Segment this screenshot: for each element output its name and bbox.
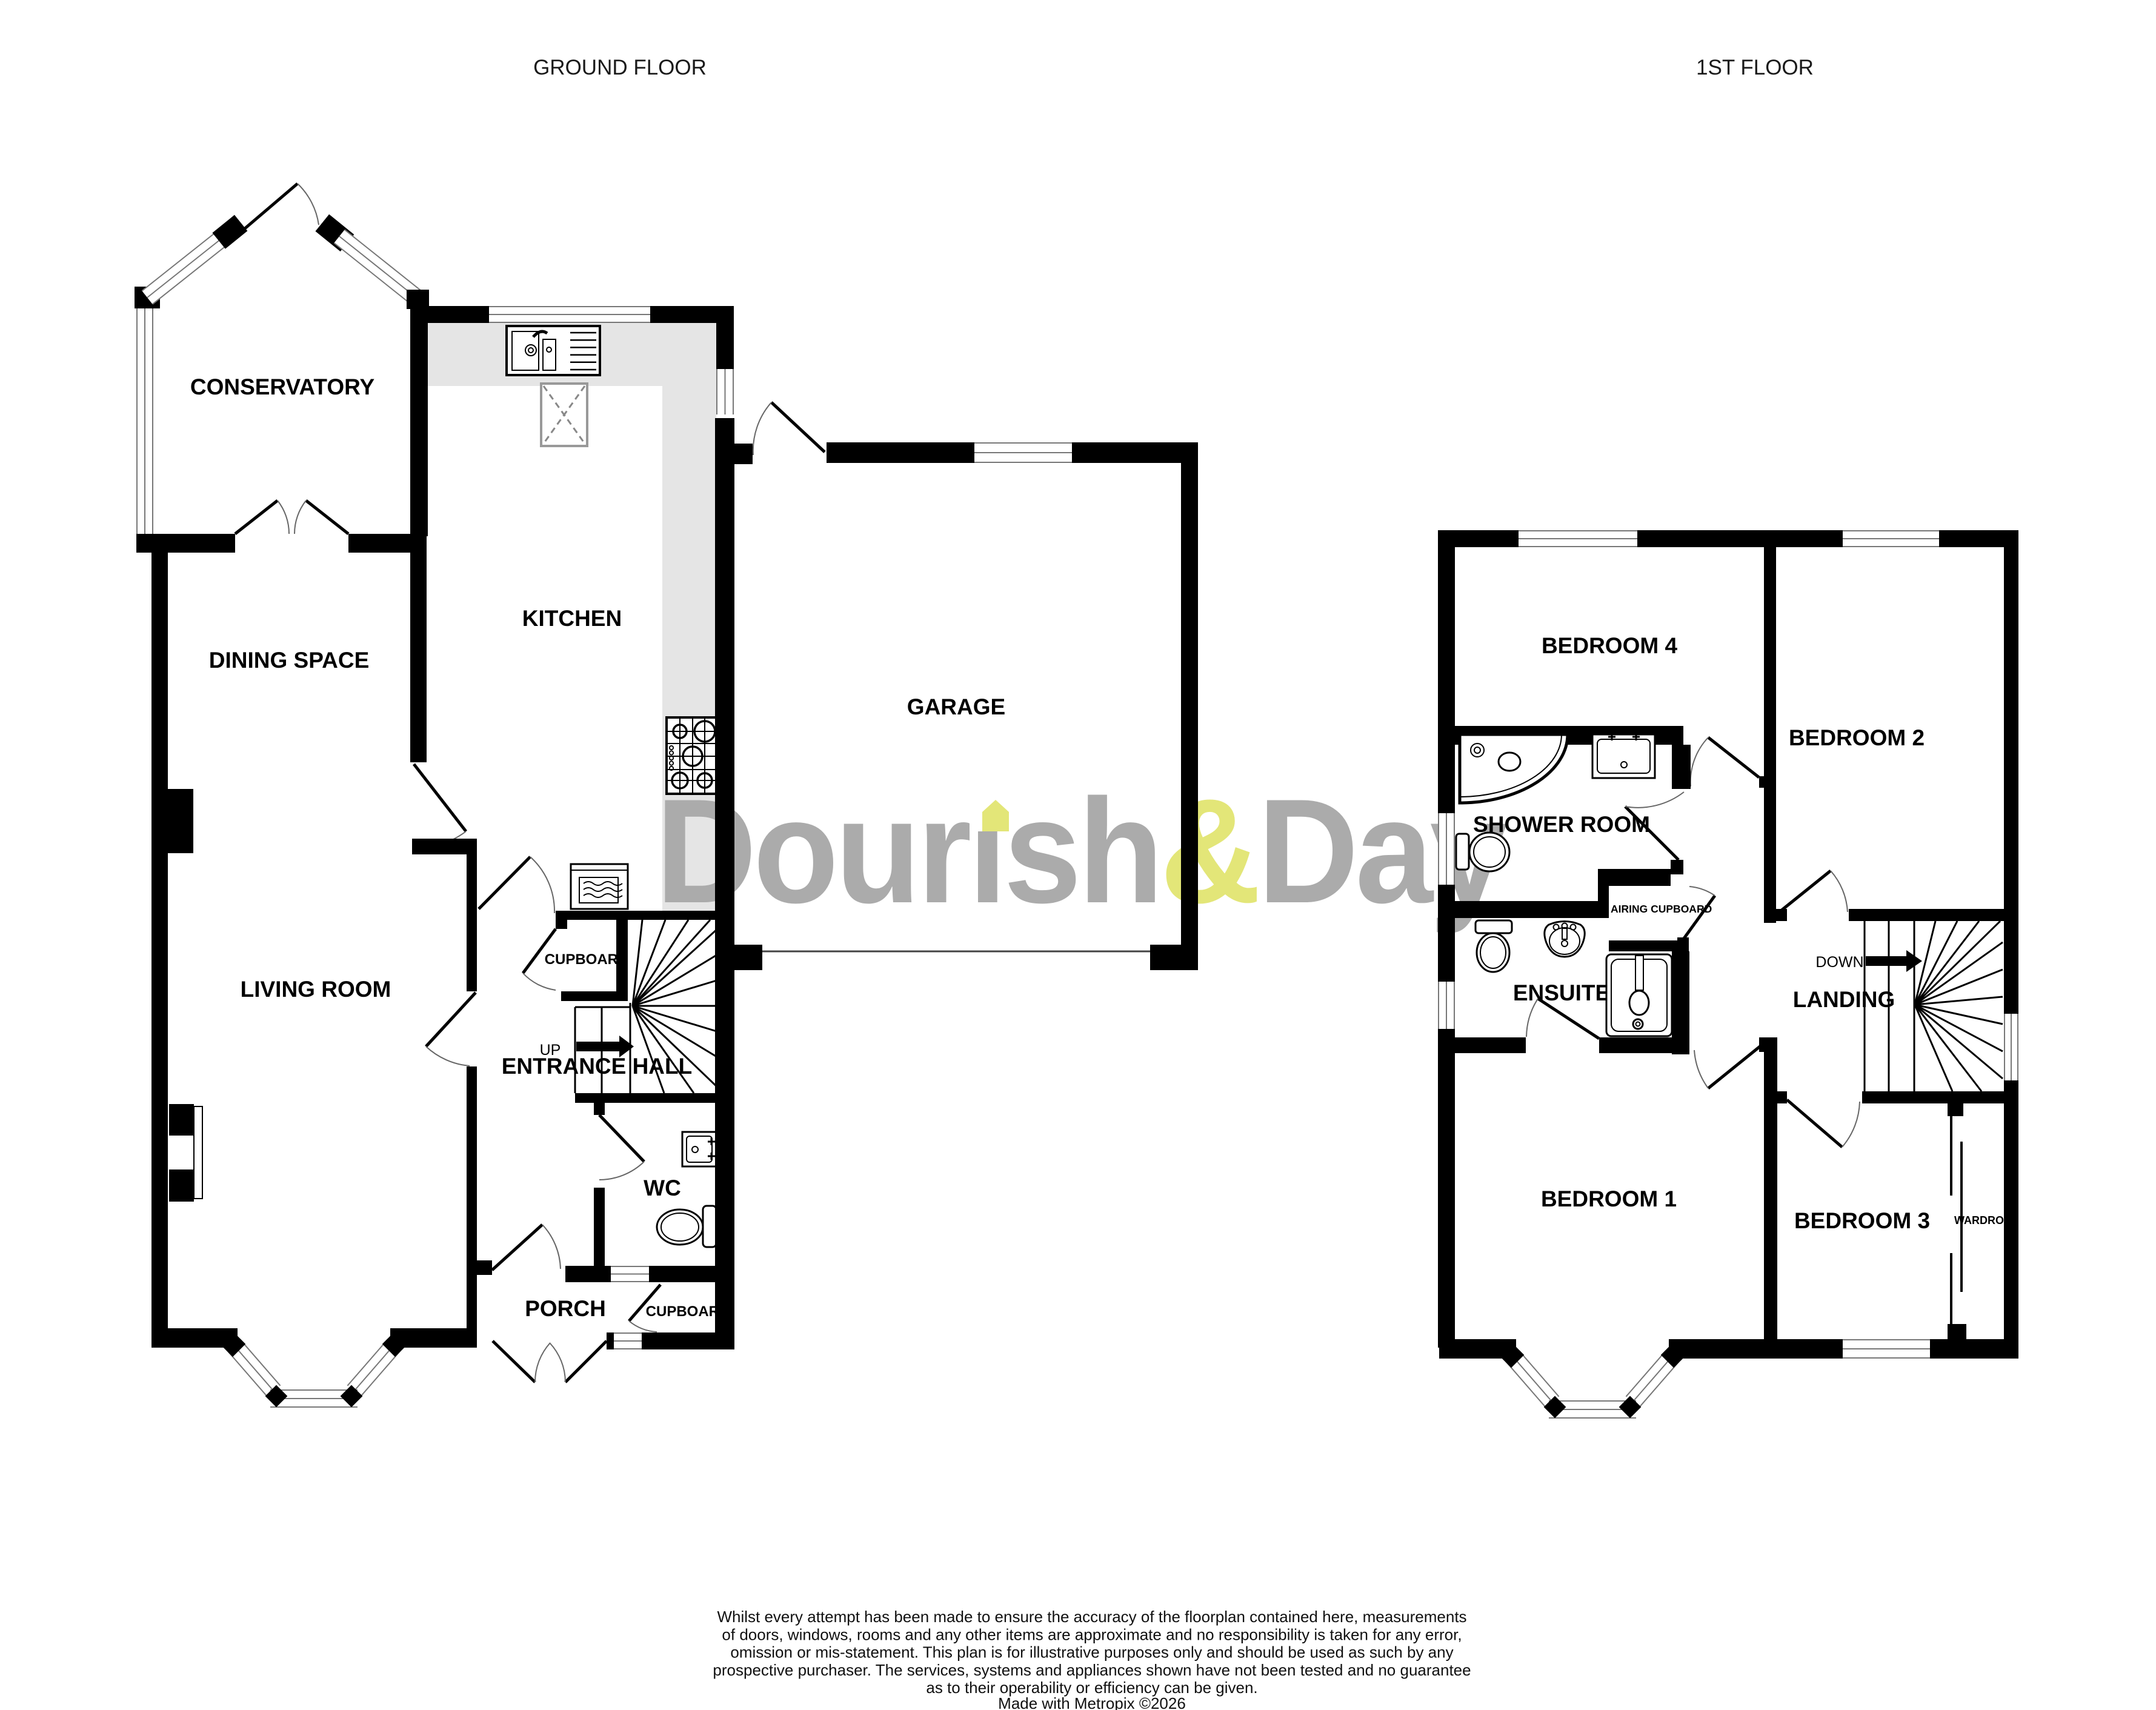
svg-text:BEDROOM 3: BEDROOM 3	[1794, 1208, 1930, 1233]
svg-text:WC: WC	[644, 1176, 681, 1200]
svg-text:PORCH: PORCH	[525, 1296, 606, 1321]
svg-text:DOWN: DOWN	[1815, 954, 1863, 971]
svg-text:AIRING CUPBOARD: AIRING CUPBOARD	[1611, 903, 1712, 915]
svg-text:LANDING: LANDING	[1793, 987, 1895, 1012]
svg-text:KITCHEN: KITCHEN	[522, 606, 622, 631]
svg-text:UP: UP	[540, 1042, 561, 1059]
svg-text:omission or mis-statement. Thi: omission or mis-statement. This plan is …	[730, 1643, 1453, 1662]
svg-text:of doors, windows, rooms and a: of doors, windows, rooms and any other i…	[722, 1625, 1462, 1643]
svg-text:ENSUITE: ENSUITE	[1513, 980, 1610, 1005]
svg-text:SHOWER ROOM: SHOWER ROOM	[1473, 812, 1650, 837]
svg-text:GROUND FLOOR: GROUND FLOOR	[533, 56, 707, 79]
svg-text:BEDROOM 1: BEDROOM 1	[1541, 1186, 1677, 1211]
svg-text:ENTRANCE HALL: ENTRANCE HALL	[502, 1054, 692, 1079]
svg-text:CONSERVATORY: CONSERVATORY	[190, 374, 375, 399]
svg-text:1ST FLOOR: 1ST FLOOR	[1696, 56, 1814, 79]
svg-text:Dourish&Day: Dourish&Day	[656, 768, 1506, 934]
svg-text:prospective purchaser. The ser: prospective purchaser. The services, sys…	[713, 1661, 1471, 1679]
svg-text:BEDROOM 2: BEDROOM 2	[1789, 725, 1925, 750]
svg-text:LIVING ROOM: LIVING ROOM	[241, 977, 391, 1002]
svg-text:Whilst every attempt has been: Whilst every attempt has been made to en…	[717, 1608, 1466, 1626]
svg-text:BEDROOM 4: BEDROOM 4	[1542, 633, 1678, 658]
svg-text:DINING SPACE: DINING SPACE	[209, 648, 370, 673]
svg-text:Made with Metropix ©2026: Made with Metropix ©2026	[998, 1694, 1186, 1710]
svg-text:CUPBOARD: CUPBOARD	[545, 951, 629, 968]
svg-text:GARAGE: GARAGE	[907, 694, 1005, 719]
